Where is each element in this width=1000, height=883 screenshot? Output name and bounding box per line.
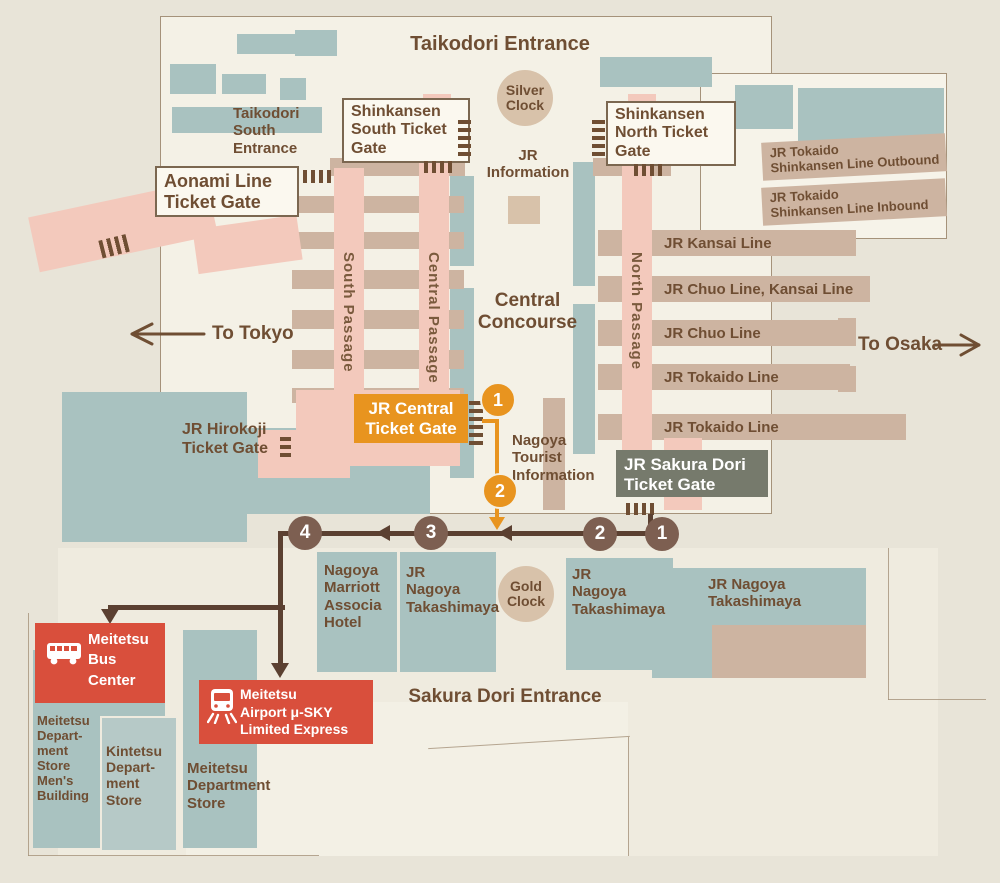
- building-block: [170, 64, 216, 94]
- outline: [888, 699, 986, 700]
- route-marker-brown-1: 1: [645, 517, 679, 551]
- route-line: [108, 605, 285, 610]
- aonami-gate-box: Aonami Line Ticket Gate: [155, 166, 299, 217]
- route-line: [278, 605, 283, 665]
- gate-ticks: [303, 170, 333, 183]
- building-block: [222, 74, 266, 94]
- gate-ticks: [424, 161, 456, 173]
- taikodori-entrance-label: Taikodori Entrance: [360, 33, 640, 56]
- gate-ticks: [634, 164, 666, 176]
- building-block: [237, 34, 321, 54]
- gold-clock: Gold Clock: [498, 566, 554, 622]
- south-passage-label: South Passage: [340, 252, 357, 373]
- platform-label-chuo-kansai: JR Chuo Line, Kansai Line: [664, 281, 853, 298]
- platform-label-chuo: JR Chuo Line: [664, 325, 761, 342]
- meitetsu-bus-center-label: Meitetsu Bus Center: [88, 630, 149, 691]
- takashimaya-mid-label: JR Nagoya Takashimaya: [572, 566, 665, 618]
- building-block: [62, 392, 247, 542]
- route-arrow-left-icon: [376, 525, 390, 541]
- marriott-label: Nagoya Marriott Associa Hotel: [324, 562, 382, 632]
- shinkansen-north-gate-box: Shinkansen North Ticket Gate: [606, 101, 736, 166]
- gate-ticks: [592, 120, 605, 156]
- building-takashimaya-right-annex: [712, 625, 866, 678]
- takashimaya-right-label: JR Nagoya Takashimaya: [708, 576, 801, 611]
- to-tokyo-label: To Tokyo: [212, 323, 294, 345]
- to-osaka-label: To Osaka: [858, 334, 942, 356]
- meitetsu-dept-mens-label: Meitetsu Depart- ment Store Men's Buildi…: [37, 713, 90, 803]
- to-tokyo-arrow-icon: [126, 320, 210, 348]
- orange-arrow-down-icon: [489, 517, 505, 530]
- taikodori-south-entrance-label: Taikodori South Entrance: [233, 105, 299, 157]
- shinkansen-south-gate-box: Shinkansen South Ticket Gate: [342, 98, 470, 163]
- gold-clock-label: Gold Clock: [507, 579, 545, 610]
- sakura-dori-entrance-label: Sakura Dori Entrance: [400, 686, 610, 708]
- route-line: [278, 531, 283, 611]
- route-marker-orange-1: 1: [480, 382, 516, 418]
- gate-ticks: [458, 120, 471, 156]
- platform-stub: [838, 366, 856, 392]
- train-icon: [207, 688, 237, 724]
- platform-label-tokaido-1: JR Tokaido Line: [664, 369, 779, 386]
- outline: [628, 737, 629, 856]
- jr-central-gate-box: JR Central Ticket Gate: [354, 394, 468, 443]
- bus-icon: [46, 641, 82, 667]
- meitetsu-airport-express-label: Meitetsu Airport μ-SKY Limited Express: [240, 686, 348, 739]
- route-arrow-down-icon: [271, 663, 289, 678]
- route-arrow-down-icon: [101, 609, 119, 624]
- kintetsu-dept-label: Kintetsu Depart- ment Store: [106, 743, 162, 808]
- takashimaya-left-label: JR Nagoya Takashimaya: [406, 564, 499, 616]
- building-block: [450, 176, 474, 266]
- route-marker-brown-2: 2: [583, 517, 617, 551]
- building-block: [735, 85, 793, 129]
- central-passage-label: Central Passage: [425, 252, 442, 384]
- outline: [888, 548, 889, 700]
- platform-label-kansai: JR Kansai Line: [664, 235, 772, 252]
- route-marker-orange-2: 2: [482, 473, 518, 509]
- to-osaka-arrow-icon: [931, 331, 985, 359]
- meitetsu-dept-label: Meitetsu Department Store: [187, 760, 270, 812]
- route-marker-brown-3: 3: [414, 516, 448, 550]
- silver-clock: Silver Clock: [497, 70, 553, 126]
- silver-clock-label: Silver Clock: [506, 83, 544, 114]
- building-block: [600, 57, 712, 87]
- outline: [28, 855, 319, 856]
- nagoya-station-map: Silver Clock Gold Clock Taikodori Entran…: [0, 0, 1000, 883]
- platform-stub: [838, 318, 856, 346]
- jr-information-label: JR Information: [478, 147, 578, 182]
- outline: [28, 613, 29, 856]
- platform-label-tokaido-2: JR Tokaido Line: [664, 419, 779, 436]
- gate-floor-area: [258, 430, 350, 478]
- info-kiosk: [508, 196, 540, 224]
- central-concourse-label: Central Concourse: [455, 290, 600, 334]
- building-block: [280, 78, 306, 100]
- route-marker-brown-4: 4: [288, 516, 322, 550]
- jr-hirokoji-gate-label: JR Hirokoji Ticket Gate: [182, 421, 268, 458]
- north-passage-label: North Passage: [628, 252, 645, 370]
- jr-sakura-dori-gate-box: JR Sakura Dori Ticket Gate: [616, 450, 768, 497]
- tourist-information-label: Nagoya Tourist Information: [512, 432, 595, 484]
- gate-ticks: [280, 437, 291, 461]
